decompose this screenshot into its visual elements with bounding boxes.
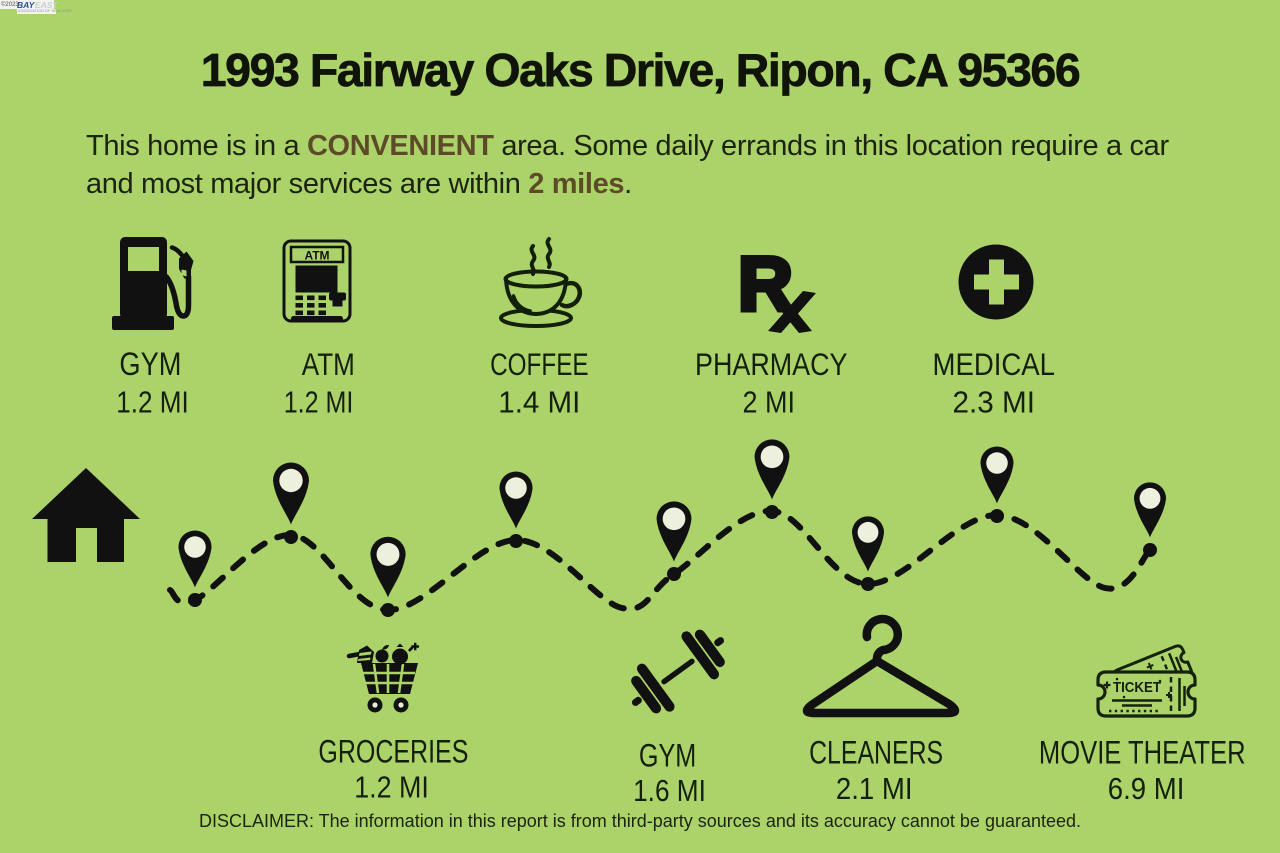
svg-text:MEDICAL: MEDICAL: [933, 346, 1056, 382]
svg-text:MOVIE THEATER: MOVIE THEATER: [1039, 735, 1246, 771]
svg-text:GROCERIES: GROCERIES: [318, 734, 468, 770]
svg-text:GYM: GYM: [639, 737, 696, 773]
svg-text:1.4 MI: 1.4 MI: [498, 385, 580, 420]
svg-text:2.1 MI: 2.1 MI: [836, 771, 913, 806]
svg-text:6.9 MI: 6.9 MI: [1108, 771, 1185, 806]
svg-text:1.2 MI: 1.2 MI: [116, 385, 189, 420]
svg-text:2.3 MI: 2.3 MI: [953, 385, 1036, 420]
svg-text:ATM: ATM: [302, 346, 355, 382]
svg-text:ATM: ATM: [304, 249, 329, 263]
svg-text:CLEANERS: CLEANERS: [809, 735, 943, 771]
svg-text:1.2 MI: 1.2 MI: [284, 385, 354, 420]
svg-text:TICKET: TICKET: [1113, 679, 1161, 696]
svg-text:COFFEE: COFFEE: [490, 346, 588, 382]
svg-text:PHARMACY: PHARMACY: [695, 346, 848, 382]
svg-text:1.6 MI: 1.6 MI: [633, 773, 706, 808]
svg-text:2 MI: 2 MI: [743, 385, 796, 420]
svg-text:1.2 MI: 1.2 MI: [354, 769, 429, 804]
svg-text:GYM: GYM: [119, 346, 181, 382]
